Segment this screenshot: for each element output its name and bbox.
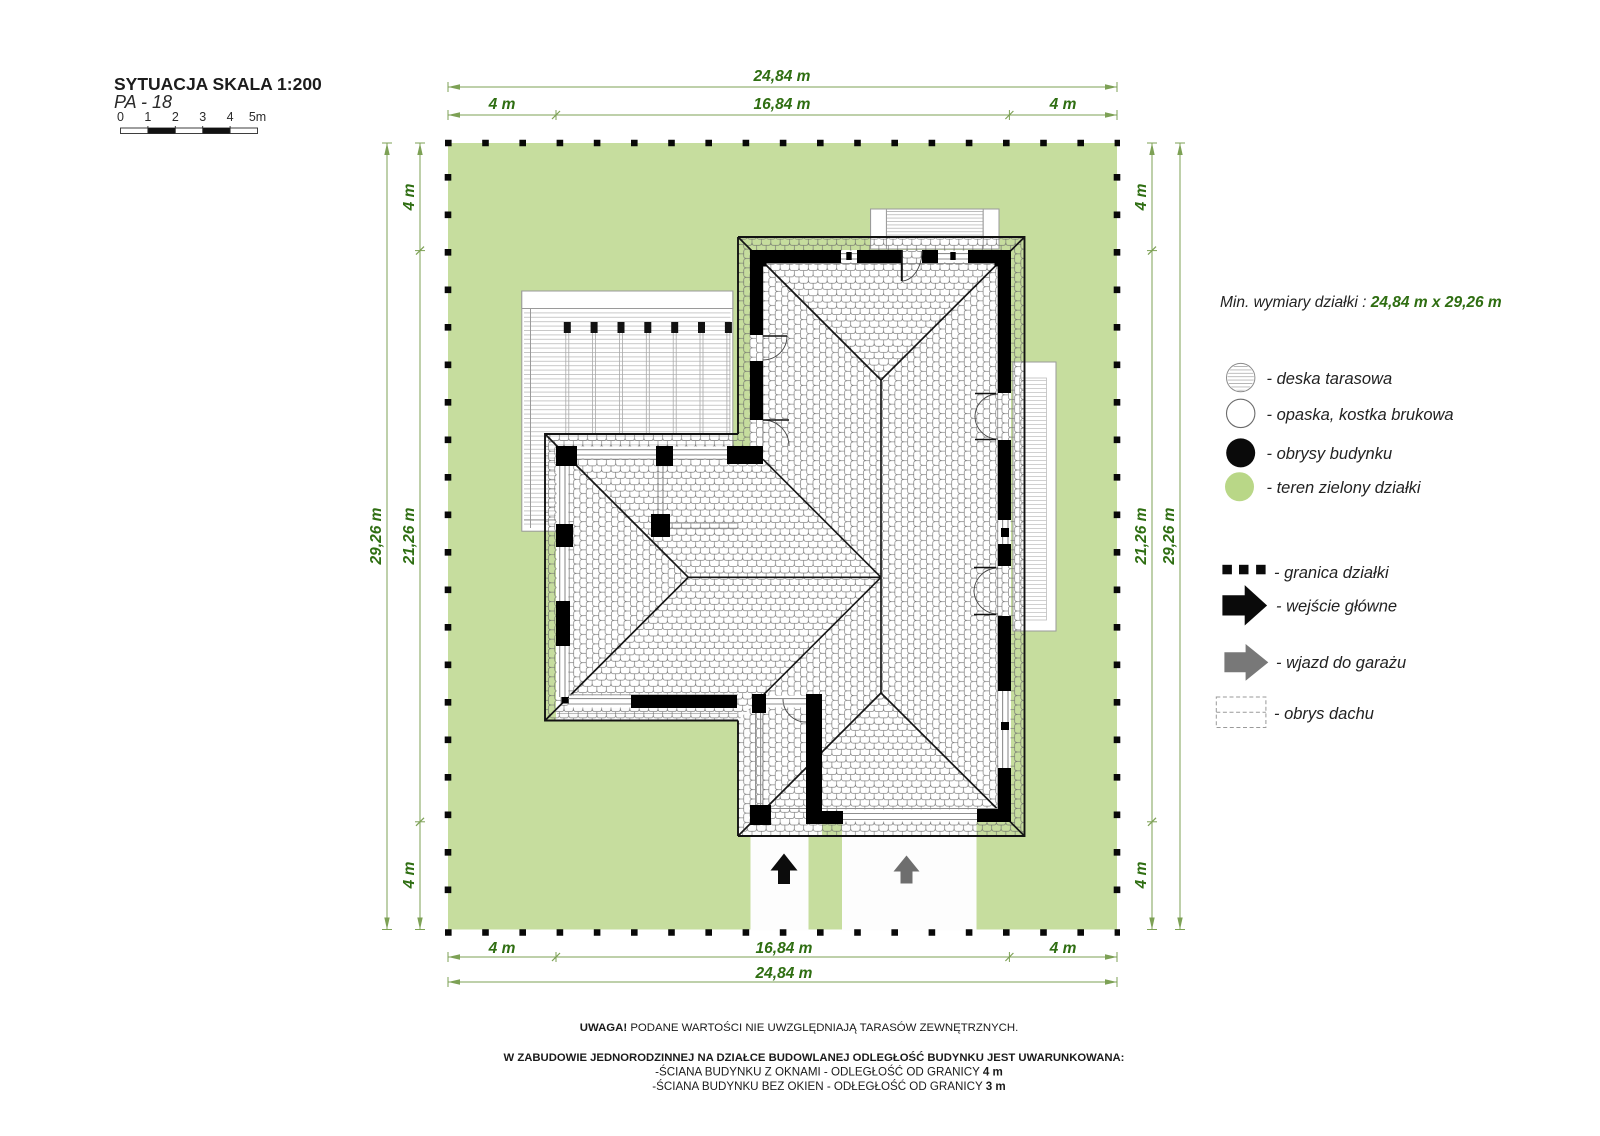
- svg-text:Min. wymiary działki : 24,84 m: Min. wymiary działki : 24,84 m x 29,26 m: [1220, 294, 1502, 311]
- svg-text:21,26 m: 21,26 m: [401, 507, 418, 565]
- svg-text:4 m: 4 m: [401, 183, 418, 211]
- svg-text:29,26 m: 29,26 m: [368, 507, 385, 565]
- svg-text:29,26 m: 29,26 m: [1161, 507, 1178, 565]
- svg-text:5m: 5m: [249, 110, 266, 124]
- svg-text:1: 1: [144, 110, 151, 124]
- svg-text:16,84 m: 16,84 m: [754, 96, 811, 113]
- svg-text:4 m: 4 m: [1133, 183, 1150, 211]
- svg-text:-ŚCIANA BUDYNKU Z OKNAMI - ODL: -ŚCIANA BUDYNKU Z OKNAMI - ODLEGŁOŚĆ OD …: [655, 1066, 1003, 1079]
- svg-text:4 m: 4 m: [401, 861, 418, 889]
- svg-text:4 m: 4 m: [488, 940, 516, 957]
- svg-text:4 m: 4 m: [1049, 96, 1077, 113]
- svg-text:PA - 18: PA - 18: [114, 92, 172, 112]
- svg-text:4: 4: [227, 110, 234, 124]
- svg-text:- deska tarasowa: - deska tarasowa: [1267, 370, 1393, 388]
- svg-text:24,84 m: 24,84 m: [753, 68, 811, 85]
- svg-text:2: 2: [172, 110, 179, 124]
- svg-text:- obrys dachu: - obrys dachu: [1274, 705, 1374, 723]
- svg-text:W ZABUDOWIE JEDNORODZINNEJ NA: W ZABUDOWIE JEDNORODZINNEJ NA DZIAŁCE BU…: [504, 1051, 1125, 1064]
- svg-text:UWAGA! PODANE WARTOŚCI NIE UWZ: UWAGA! PODANE WARTOŚCI NIE UWZGLĘDNIAJĄ …: [580, 1021, 1019, 1034]
- svg-text:16,84 m: 16,84 m: [756, 940, 813, 957]
- svg-text:21,26 m: 21,26 m: [1133, 507, 1150, 565]
- svg-text:- opaska, kostka brukowa: - opaska, kostka brukowa: [1267, 406, 1454, 424]
- svg-text:- teren zielony działki: - teren zielony działki: [1267, 479, 1422, 497]
- svg-text:- wejście główne: - wejście główne: [1276, 598, 1397, 616]
- svg-text:3: 3: [199, 110, 206, 124]
- svg-text:4 m: 4 m: [1133, 861, 1150, 889]
- svg-text:- obrysy budynku: - obrysy budynku: [1267, 445, 1393, 463]
- svg-text:4 m: 4 m: [488, 96, 516, 113]
- svg-text:4 m: 4 m: [1049, 940, 1077, 957]
- svg-text:SYTUACJA SKALA 1:200: SYTUACJA SKALA 1:200: [114, 74, 322, 94]
- svg-text:- wjazd do garażu: - wjazd do garażu: [1276, 654, 1406, 672]
- svg-text:- granica działki: - granica działki: [1274, 564, 1390, 582]
- svg-text:0: 0: [117, 110, 124, 124]
- svg-text:24,84 m: 24,84 m: [755, 965, 813, 982]
- svg-text:-ŚCIANA BUDYNKU BEZ OKIEN - OD: -ŚCIANA BUDYNKU BEZ OKIEN - ODŁEGŁOŚĆ OD…: [652, 1080, 1005, 1093]
